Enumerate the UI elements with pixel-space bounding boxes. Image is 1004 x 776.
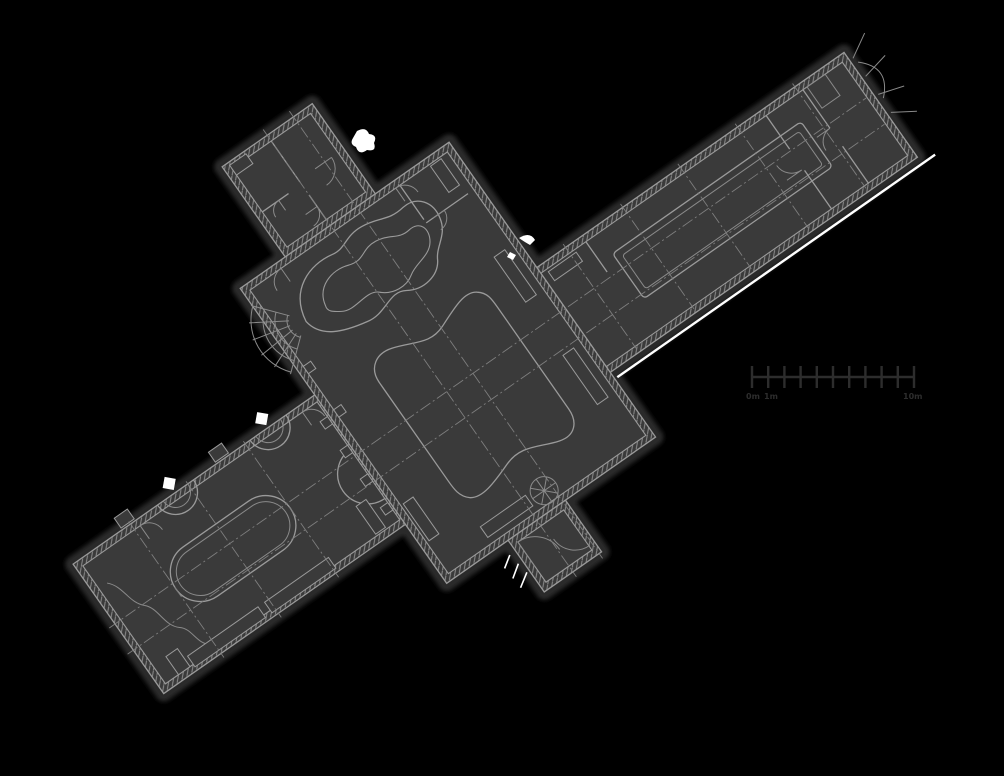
scale-bar-end-label: 10m xyxy=(903,392,922,401)
scale-bar-start-label: 0m xyxy=(746,392,760,401)
floor-plan-canvas: 0m 1m 10m xyxy=(0,0,1004,776)
scale-bar-second-label: 1m xyxy=(764,392,778,401)
floor-plan-svg: 0m 1m 10m xyxy=(0,0,1004,776)
